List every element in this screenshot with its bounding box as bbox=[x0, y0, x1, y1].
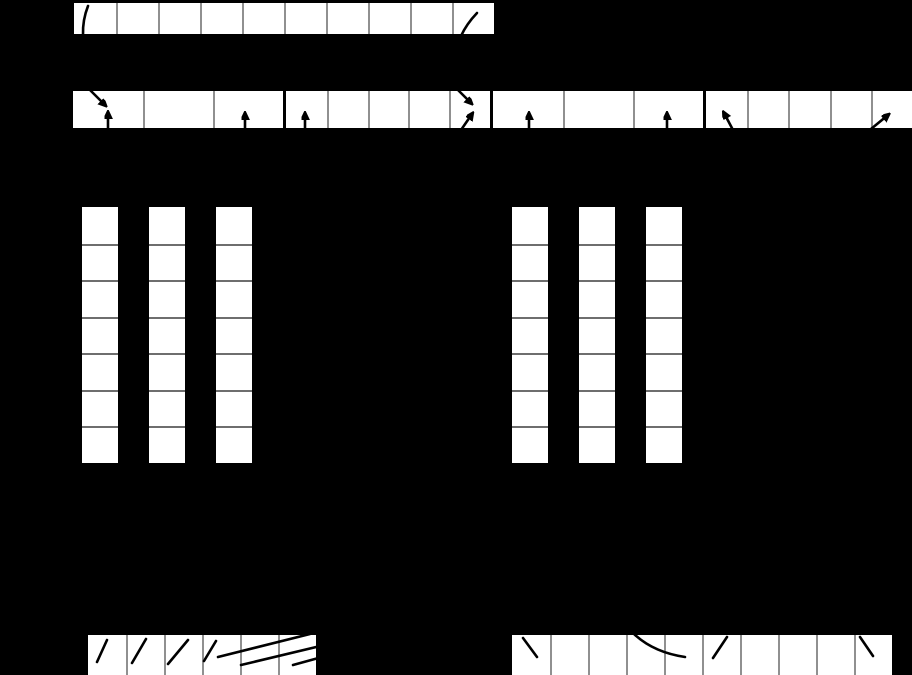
page-column-right-1-cell-5 bbox=[512, 353, 548, 390]
top-run-array-cell-1 bbox=[74, 3, 116, 34]
page-column-left-2 bbox=[149, 207, 185, 463]
buffer-group-2-cell-5 bbox=[449, 91, 490, 128]
page-column-left-3-cell-2 bbox=[216, 244, 252, 281]
page-column-right-2-cell-5 bbox=[579, 353, 615, 390]
bottom-run-left-cell-6 bbox=[278, 635, 316, 675]
top-run-array-cell-8 bbox=[368, 3, 410, 34]
page-column-right-3-cell-7 bbox=[646, 426, 682, 463]
buffer-group-1-cell-2 bbox=[143, 91, 213, 128]
top-run-array-cell-2 bbox=[116, 3, 158, 34]
top-run-array-cell-4 bbox=[200, 3, 242, 34]
buffer-group-4 bbox=[706, 91, 912, 128]
page-column-right-3 bbox=[646, 207, 682, 463]
page-column-left-1-cell-6 bbox=[82, 390, 118, 427]
page-column-left-3-cell-6 bbox=[216, 390, 252, 427]
bottom-run-right-cell-1 bbox=[512, 635, 550, 675]
page-column-right-3-cell-1 bbox=[646, 207, 682, 244]
buffer-group-2-cell-2 bbox=[327, 91, 368, 128]
page-column-left-1-cell-5 bbox=[82, 353, 118, 390]
bottom-run-left-cell-4 bbox=[202, 635, 240, 675]
page-column-right-1-cell-3 bbox=[512, 280, 548, 317]
buffer-group-3-cell-1 bbox=[493, 91, 563, 128]
buffer-group-2-cell-3 bbox=[368, 91, 409, 128]
bottom-run-right-cell-4 bbox=[626, 635, 664, 675]
page-column-left-2-cell-1 bbox=[149, 207, 185, 244]
page-column-left-1 bbox=[82, 207, 118, 463]
bottom-run-right-cell-8 bbox=[778, 635, 816, 675]
page-column-right-2-cell-1 bbox=[579, 207, 615, 244]
top-run-array-cell-3 bbox=[158, 3, 200, 34]
page-column-right-2-cell-7 bbox=[579, 426, 615, 463]
page-column-right-2-cell-3 bbox=[579, 280, 615, 317]
page-column-left-1-cell-1 bbox=[82, 207, 118, 244]
buffer-group-4-cell-1 bbox=[706, 91, 747, 128]
page-column-left-3-cell-7 bbox=[216, 426, 252, 463]
diagram-canvas bbox=[0, 0, 912, 675]
page-column-right-2-cell-2 bbox=[579, 244, 615, 281]
page-column-left-3-cell-3 bbox=[216, 280, 252, 317]
page-column-right-2-cell-6 bbox=[579, 390, 615, 427]
buffer-group-1-cell-3 bbox=[213, 91, 283, 128]
page-column-left-1-cell-7 bbox=[82, 426, 118, 463]
page-column-right-1-cell-4 bbox=[512, 317, 548, 354]
top-run-array-cell-9 bbox=[410, 3, 452, 34]
top-run-array-cell-6 bbox=[284, 3, 326, 34]
top-run-array-cell-10 bbox=[452, 3, 494, 34]
buffer-group-4-cell-4 bbox=[830, 91, 871, 128]
page-column-right-3-cell-6 bbox=[646, 390, 682, 427]
top-run-array-cell-7 bbox=[326, 3, 368, 34]
buffer-group-4-cell-2 bbox=[747, 91, 788, 128]
page-column-left-3 bbox=[216, 207, 252, 463]
page-column-right-3-cell-5 bbox=[646, 353, 682, 390]
buffer-group-3 bbox=[493, 91, 703, 128]
bottom-run-right-cell-3 bbox=[588, 635, 626, 675]
page-column-left-1-cell-4 bbox=[82, 317, 118, 354]
bottom-run-left-cell-1 bbox=[88, 635, 126, 675]
bottom-run-left bbox=[88, 635, 316, 675]
page-column-right-2-cell-4 bbox=[579, 317, 615, 354]
buffer-group-2-cell-4 bbox=[408, 91, 449, 128]
page-column-right-3-cell-4 bbox=[646, 317, 682, 354]
page-column-left-2-cell-2 bbox=[149, 244, 185, 281]
bottom-run-right-cell-9 bbox=[816, 635, 854, 675]
buffer-group-1 bbox=[73, 91, 283, 128]
buffer-group-3-cell-2 bbox=[563, 91, 633, 128]
bottom-run-right-cell-7 bbox=[740, 635, 778, 675]
page-column-right-1-cell-7 bbox=[512, 426, 548, 463]
buffer-group-2-cell-1 bbox=[286, 91, 327, 128]
bottom-run-right-cell-5 bbox=[664, 635, 702, 675]
buffer-group-4-cell-5 bbox=[871, 91, 912, 128]
page-column-right-1-cell-2 bbox=[512, 244, 548, 281]
bottom-run-left-cell-2 bbox=[126, 635, 164, 675]
page-column-right-1-cell-1 bbox=[512, 207, 548, 244]
buffer-group-1-cell-1 bbox=[73, 91, 143, 128]
page-column-left-3-cell-4 bbox=[216, 317, 252, 354]
bottom-run-right-cell-2 bbox=[550, 635, 588, 675]
bottom-run-right bbox=[512, 635, 892, 675]
page-column-left-2-cell-7 bbox=[149, 426, 185, 463]
page-column-left-2-cell-3 bbox=[149, 280, 185, 317]
page-column-left-2-cell-4 bbox=[149, 317, 185, 354]
page-column-right-1-cell-6 bbox=[512, 390, 548, 427]
bottom-run-left-cell-3 bbox=[164, 635, 202, 675]
top-run-array bbox=[74, 3, 494, 34]
page-column-left-1-cell-2 bbox=[82, 244, 118, 281]
buffer-group-4-cell-3 bbox=[788, 91, 829, 128]
buffer-group-3-cell-3 bbox=[633, 91, 703, 128]
page-column-left-3-cell-1 bbox=[216, 207, 252, 244]
page-column-left-1-cell-3 bbox=[82, 280, 118, 317]
page-column-left-2-cell-5 bbox=[149, 353, 185, 390]
buffer-group-2 bbox=[286, 91, 490, 128]
page-column-left-3-cell-5 bbox=[216, 353, 252, 390]
page-column-right-3-cell-2 bbox=[646, 244, 682, 281]
top-run-array-cell-5 bbox=[242, 3, 284, 34]
bottom-run-right-cell-6 bbox=[702, 635, 740, 675]
bottom-run-left-cell-5 bbox=[240, 635, 278, 675]
page-column-right-1 bbox=[512, 207, 548, 463]
page-column-right-2 bbox=[579, 207, 615, 463]
page-column-right-3-cell-3 bbox=[646, 280, 682, 317]
page-column-left-2-cell-6 bbox=[149, 390, 185, 427]
bottom-run-right-cell-10 bbox=[854, 635, 892, 675]
